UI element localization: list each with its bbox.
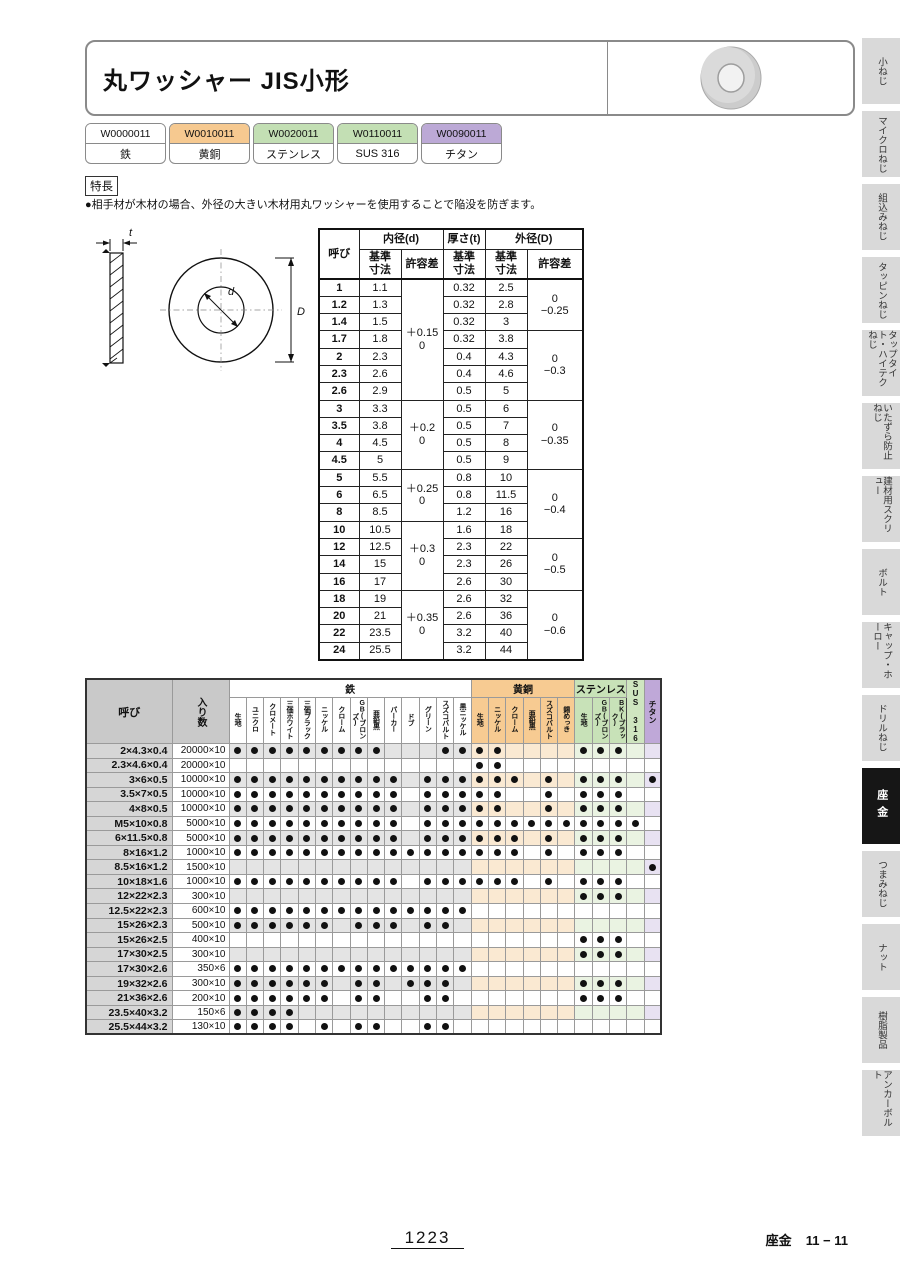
- dim-cell: 23.5: [359, 625, 401, 642]
- product-code-tab[interactable]: W0000011鉄: [85, 123, 166, 164]
- dim-cell: 18: [485, 521, 527, 538]
- availability-cell: [592, 889, 609, 904]
- available-dot-icon: [597, 951, 604, 958]
- availability-cell: [506, 816, 523, 831]
- availability-cell: [281, 773, 298, 788]
- size-label: 15×26×2.5: [86, 933, 172, 948]
- matrix-group-header: ステンレス: [575, 679, 627, 697]
- sidebar-tab-category[interactable]: つまみねじ: [862, 851, 900, 917]
- availability-cell: [610, 1005, 627, 1020]
- available-dot-icon: [494, 776, 501, 783]
- available-dot-icon: [390, 849, 397, 856]
- availability-cell: [488, 802, 505, 817]
- finish-label: 亜鉛黒: [373, 698, 380, 741]
- finish-label: 錫めっき: [563, 698, 570, 741]
- availability-cell: [315, 831, 332, 846]
- available-dot-icon: [442, 791, 449, 798]
- finish-label: ドブ: [407, 698, 414, 741]
- availability-cell: [367, 831, 384, 846]
- pack-quantity: 300×10: [172, 976, 229, 991]
- availability-cell: [419, 831, 436, 846]
- availability-cell: [610, 947, 627, 962]
- availability-cell: [298, 947, 315, 962]
- availability-cell: [419, 1020, 436, 1035]
- dim-cell: 1.4: [319, 314, 359, 331]
- available-dot-icon: [511, 835, 518, 842]
- availability-cell: [575, 1020, 592, 1035]
- sidebar-tab-category[interactable]: タップタイト・ハイテクねじ: [862, 330, 900, 396]
- availability-cell: [367, 1005, 384, 1020]
- availability-cell: [315, 1020, 332, 1035]
- washer-diagram: t d D: [88, 225, 313, 395]
- availability-cell: [592, 1020, 609, 1035]
- matrix-finish-header: ドブ: [402, 697, 419, 743]
- matrix-row: 25.5×44×3.2130×10: [86, 1020, 661, 1035]
- sidebar-tab-category[interactable]: ナット: [862, 924, 900, 990]
- size-label: 12×22×2.3: [86, 889, 172, 904]
- finish-label: スズコバルト: [442, 698, 449, 741]
- availability-cell: [281, 933, 298, 948]
- dim-cell: 2.9: [359, 383, 401, 400]
- available-dot-icon: [251, 922, 258, 929]
- availability-cell: [264, 889, 281, 904]
- available-dot-icon: [476, 878, 483, 885]
- availability-cell: [229, 889, 246, 904]
- dim-cell: 15: [359, 556, 401, 573]
- availability-cell: [298, 773, 315, 788]
- availability-cell: [506, 918, 523, 933]
- available-dot-icon: [269, 980, 276, 987]
- availability-cell: [610, 962, 627, 977]
- dim-cell: 3: [319, 400, 359, 417]
- availability-cell: [488, 904, 505, 919]
- availability-cell: [644, 787, 661, 802]
- availability-cell: [454, 845, 471, 860]
- dim-cell: 6: [485, 400, 527, 417]
- availability-cell: [367, 933, 384, 948]
- availability-cell: [575, 904, 592, 919]
- availability-cell: [315, 918, 332, 933]
- available-dot-icon: [597, 747, 604, 754]
- availability-cell: [488, 976, 505, 991]
- dim-cell: 0.32: [443, 314, 485, 331]
- matrix-finish-header: ニッケル: [315, 697, 332, 743]
- available-dot-icon: [234, 747, 241, 754]
- availability-cell: [333, 976, 350, 991]
- available-dot-icon: [545, 820, 552, 827]
- availability-cell: [264, 1020, 281, 1035]
- sidebar-tab-category[interactable]: 樹脂製品: [862, 997, 900, 1063]
- sidebar-tab-category[interactable]: ドリルねじ: [862, 695, 900, 761]
- finish-label: 生地: [580, 698, 587, 741]
- availability-cell: [402, 845, 419, 860]
- availability-cell: [627, 744, 644, 759]
- available-dot-icon: [580, 820, 587, 827]
- available-dot-icon: [580, 835, 587, 842]
- dim-header-name: 呼び: [319, 229, 359, 279]
- dim-od-tolerance: 0 −0.6: [527, 590, 583, 659]
- available-dot-icon: [234, 922, 241, 929]
- availability-cell: [575, 874, 592, 889]
- matrix-row: 3×6×0.510000×10: [86, 773, 661, 788]
- availability-cell: [229, 816, 246, 831]
- sidebar-tab-category[interactable]: キャップ・ホーロー: [862, 622, 900, 688]
- available-dot-icon: [407, 980, 414, 987]
- footer-section-ref: 座金11 − 11: [766, 1230, 848, 1249]
- matrix-finish-header: GB(ブロンズ): [592, 697, 609, 743]
- availability-cell: [402, 904, 419, 919]
- available-dot-icon: [303, 922, 310, 929]
- availability-cell: [592, 904, 609, 919]
- availability-cell: [558, 787, 575, 802]
- availability-cell: [402, 1005, 419, 1020]
- availability-cell: [264, 918, 281, 933]
- availability-cell: [402, 1020, 419, 1035]
- sidebar-tab-category[interactable]: 小ねじ: [862, 38, 900, 104]
- availability-cell: [471, 1020, 488, 1035]
- availability-cell: [471, 802, 488, 817]
- finish-label: 三価ホワイト: [286, 698, 293, 741]
- available-dot-icon: [269, 805, 276, 812]
- availability-cell: [298, 889, 315, 904]
- available-dot-icon: [511, 776, 518, 783]
- sidebar-tab-category[interactable]: ボルト: [862, 549, 900, 615]
- availability-cell: [644, 860, 661, 875]
- available-dot-icon: [580, 849, 587, 856]
- availability-cell: [385, 816, 402, 831]
- availability-cell: [281, 918, 298, 933]
- availability-cell: [610, 918, 627, 933]
- availability-cell: [315, 773, 332, 788]
- available-dot-icon: [494, 849, 501, 856]
- available-dot-icon: [390, 791, 397, 798]
- dim-cell: 0.4: [443, 348, 485, 365]
- availability-cell: [471, 889, 488, 904]
- material-name: 鉄: [86, 144, 165, 164]
- available-dot-icon: [424, 980, 431, 987]
- availability-cell: [385, 991, 402, 1006]
- available-dot-icon: [251, 835, 258, 842]
- dim-cell: 1.8: [359, 331, 401, 348]
- availability-cell: [454, 991, 471, 1006]
- product-code-tab[interactable]: W0090011チタン: [421, 123, 502, 164]
- dim-cell: 1.6: [443, 521, 485, 538]
- product-code-tab[interactable]: W0010011黄銅: [169, 123, 250, 164]
- availability-cell: [385, 933, 402, 948]
- availability-cell: [419, 962, 436, 977]
- availability-cell: [419, 845, 436, 860]
- availability-cell: [333, 773, 350, 788]
- availability-cell: [627, 1005, 644, 1020]
- availability-cell: [367, 904, 384, 919]
- availability-cell: [385, 1020, 402, 1035]
- availability-cell: [281, 758, 298, 773]
- availability-cell: [575, 860, 592, 875]
- available-dot-icon: [390, 776, 397, 783]
- availability-cell: [385, 831, 402, 846]
- sidebar-tab-category[interactable]: タッピンねじ: [862, 257, 900, 323]
- availability-cell: [437, 773, 454, 788]
- availability-cell: [644, 933, 661, 948]
- finish-label: ユニクロ: [251, 698, 258, 741]
- available-dot-icon: [494, 805, 501, 812]
- availability-cell: [558, 933, 575, 948]
- available-dot-icon: [476, 820, 483, 827]
- availability-cell: [627, 976, 644, 991]
- available-dot-icon: [545, 835, 552, 842]
- dim-cell: 16: [485, 504, 527, 521]
- availability-cell: [367, 991, 384, 1006]
- product-code-tab[interactable]: W0020011ステンレス: [253, 123, 334, 164]
- availability-cell: [454, 1005, 471, 1020]
- available-dot-icon: [424, 849, 431, 856]
- available-dot-icon: [459, 791, 466, 798]
- availability-cell: [644, 758, 661, 773]
- availability-cell: [246, 773, 263, 788]
- availability-cell: [471, 860, 488, 875]
- product-code-tabs: W0000011鉄W0010011黄銅W0020011ステンレスW0110011…: [85, 123, 502, 164]
- dim-cell: 4.5: [359, 435, 401, 452]
- finish-label: 生地: [234, 698, 241, 741]
- available-dot-icon: [286, 995, 293, 1002]
- availability-cell: [246, 1005, 263, 1020]
- availability-cell: [592, 744, 609, 759]
- dim-cell: 10: [485, 469, 527, 486]
- availability-cell: [437, 831, 454, 846]
- available-dot-icon: [321, 878, 328, 885]
- availability-cell: [246, 787, 263, 802]
- dim-cell: 44: [485, 642, 527, 659]
- dim-cell: 3: [485, 314, 527, 331]
- dim-od-tolerance: 0 −0.5: [527, 538, 583, 590]
- availability-cell: [471, 744, 488, 759]
- available-dot-icon: [373, 1023, 380, 1030]
- available-dot-icon: [580, 805, 587, 812]
- availability-cell: [575, 991, 592, 1006]
- availability-cell: [610, 991, 627, 1006]
- matrix-row: 8.5×16×1.21500×10: [86, 860, 661, 875]
- availability-cell: [281, 802, 298, 817]
- availability-cell: [367, 1020, 384, 1035]
- availability-cell: [471, 787, 488, 802]
- availability-cell: [558, 976, 575, 991]
- available-dot-icon: [494, 820, 501, 827]
- availability-cell: [419, 918, 436, 933]
- availability-cell: [488, 845, 505, 860]
- available-dot-icon: [355, 820, 362, 827]
- available-dot-icon: [615, 791, 622, 798]
- dim-cell: 2.3: [443, 556, 485, 573]
- availability-cell: [402, 991, 419, 1006]
- availability-cell: [506, 991, 523, 1006]
- availability-cell: [540, 904, 557, 919]
- availability-cell: [350, 816, 367, 831]
- availability-cell: [350, 802, 367, 817]
- availability-cell: [454, 816, 471, 831]
- available-dot-icon: [303, 995, 310, 1002]
- size-label: 15×26×2.3: [86, 918, 172, 933]
- title-area: 丸ワッシャー JIS小形: [87, 42, 608, 114]
- available-dot-icon: [390, 878, 397, 885]
- availability-cell: [575, 845, 592, 860]
- dim-cell: 2.6: [359, 365, 401, 382]
- availability-cell: [523, 816, 540, 831]
- sidebar-tab-category[interactable]: アンカーボルト: [862, 1070, 900, 1136]
- dim-cell: 40: [485, 625, 527, 642]
- available-dot-icon: [303, 965, 310, 972]
- availability-cell: [644, 744, 661, 759]
- available-dot-icon: [269, 820, 276, 827]
- matrix-row: 15×26×2.3500×10: [86, 918, 661, 933]
- matrix-row: 8×16×1.21000×10: [86, 845, 661, 860]
- availability-cell: [264, 802, 281, 817]
- availability-cell: [298, 860, 315, 875]
- availability-cell: [488, 933, 505, 948]
- dim-cell: 0.5: [443, 383, 485, 400]
- available-dot-icon: [234, 849, 241, 856]
- available-dot-icon: [545, 805, 552, 812]
- availability-cell: [229, 874, 246, 889]
- availability-cell: [471, 845, 488, 860]
- availability-cell: [367, 874, 384, 889]
- availability-cell: [333, 991, 350, 1006]
- available-dot-icon: [494, 878, 501, 885]
- availability-cell: [333, 904, 350, 919]
- availability-cell: [419, 889, 436, 904]
- availability-cell: [523, 758, 540, 773]
- availability-cell: [350, 962, 367, 977]
- sidebar-tab-category[interactable]: 建材用スクリュー: [862, 476, 900, 542]
- availability-cell: [367, 802, 384, 817]
- available-dot-icon: [424, 820, 431, 827]
- available-dot-icon: [286, 820, 293, 827]
- available-dot-icon: [390, 805, 397, 812]
- available-dot-icon: [286, 1023, 293, 1030]
- availability-cell: [558, 773, 575, 788]
- available-dot-icon: [269, 747, 276, 754]
- pack-quantity: 10000×10: [172, 787, 229, 802]
- available-dot-icon: [459, 776, 466, 783]
- finish-label: 黒ニッケル: [459, 698, 466, 741]
- size-label: 10×18×1.6: [86, 874, 172, 889]
- availability-cell: [402, 874, 419, 889]
- availability-cell: [350, 976, 367, 991]
- available-dot-icon: [303, 835, 310, 842]
- sidebar-tab-category[interactable]: 組込みねじ: [862, 184, 900, 250]
- availability-cell: [281, 787, 298, 802]
- availability-cell: [315, 889, 332, 904]
- availability-cell: [506, 845, 523, 860]
- available-dot-icon: [234, 820, 241, 827]
- size-label: 8×16×1.2: [86, 845, 172, 860]
- available-dot-icon: [442, 747, 449, 754]
- product-image-area: [608, 42, 853, 114]
- dim-cell: 3.8: [485, 331, 527, 348]
- size-label: 25.5×44×3.2: [86, 1020, 172, 1035]
- availability-cell: [592, 816, 609, 831]
- matrix-header-qty: 入り数: [172, 679, 229, 744]
- dim-cell: 2.3: [359, 348, 401, 365]
- availability-cell: [644, 1005, 661, 1020]
- sidebar-tab-category[interactable]: いたずら防止ねじ: [862, 403, 900, 469]
- pack-quantity: 10000×10: [172, 802, 229, 817]
- availability-cell: [540, 991, 557, 1006]
- available-dot-icon: [580, 776, 587, 783]
- availability-cell: [333, 1020, 350, 1035]
- availability-cell: [471, 991, 488, 1006]
- product-code-tab[interactable]: W0110011SUS 316: [337, 123, 418, 164]
- availability-cell: [350, 874, 367, 889]
- available-dot-icon: [424, 835, 431, 842]
- available-dot-icon: [407, 907, 414, 914]
- available-dot-icon: [597, 791, 604, 798]
- availability-cell: [298, 933, 315, 948]
- availability-cell: [540, 947, 557, 962]
- availability-cell: [506, 831, 523, 846]
- availability-cell: [350, 991, 367, 1006]
- matrix-finish-header: グリーン: [419, 697, 436, 743]
- available-dot-icon: [234, 1009, 241, 1016]
- availability-cell: [246, 962, 263, 977]
- availability-cell: [558, 962, 575, 977]
- sidebar-tab-active[interactable]: 座金: [862, 768, 900, 844]
- dim-cell: 3.8: [359, 417, 401, 434]
- availability-cell: [558, 1020, 575, 1035]
- availability-cell: [523, 1020, 540, 1035]
- availability-cell: [246, 889, 263, 904]
- availability-cell: [315, 933, 332, 948]
- availability-cell: [350, 947, 367, 962]
- availability-cell: [437, 933, 454, 948]
- available-dot-icon: [373, 907, 380, 914]
- available-dot-icon: [321, 995, 328, 1002]
- material-name: SUS 316: [338, 144, 417, 164]
- available-dot-icon: [459, 820, 466, 827]
- dim-subheader-basic: 基準 寸法: [443, 249, 485, 279]
- dim-od-tolerance: 0 −0.35: [527, 400, 583, 469]
- availability-cell: [644, 947, 661, 962]
- availability-cell: [506, 947, 523, 962]
- availability-cell: [610, 773, 627, 788]
- availability-cell: [437, 744, 454, 759]
- available-dot-icon: [459, 835, 466, 842]
- availability-cell: [264, 991, 281, 1006]
- catalog-page: 丸ワッシャー JIS小形 W0000011鉄W0010011黄銅W0020011…: [0, 0, 900, 1272]
- availability-cell: [488, 831, 505, 846]
- matrix-finish-header: クローム: [333, 697, 350, 743]
- material-name: 黄銅: [170, 144, 249, 164]
- available-dot-icon: [615, 805, 622, 812]
- availability-cell: [488, 874, 505, 889]
- availability-cell: [540, 874, 557, 889]
- availability-cell: [454, 802, 471, 817]
- availability-cell: [592, 845, 609, 860]
- availability-cell: [385, 845, 402, 860]
- available-dot-icon: [373, 980, 380, 987]
- available-dot-icon: [251, 907, 258, 914]
- feature-label: 特長: [85, 176, 118, 196]
- available-dot-icon: [580, 936, 587, 943]
- available-dot-icon: [580, 893, 587, 900]
- availability-cell: [644, 831, 661, 846]
- sidebar-tab-category[interactable]: マイクロねじ: [862, 111, 900, 177]
- available-dot-icon: [476, 849, 483, 856]
- size-label: 19×32×2.6: [86, 976, 172, 991]
- available-dot-icon: [338, 747, 345, 754]
- size-label: 17×30×2.5: [86, 947, 172, 962]
- available-dot-icon: [442, 965, 449, 972]
- availability-cell: [540, 831, 557, 846]
